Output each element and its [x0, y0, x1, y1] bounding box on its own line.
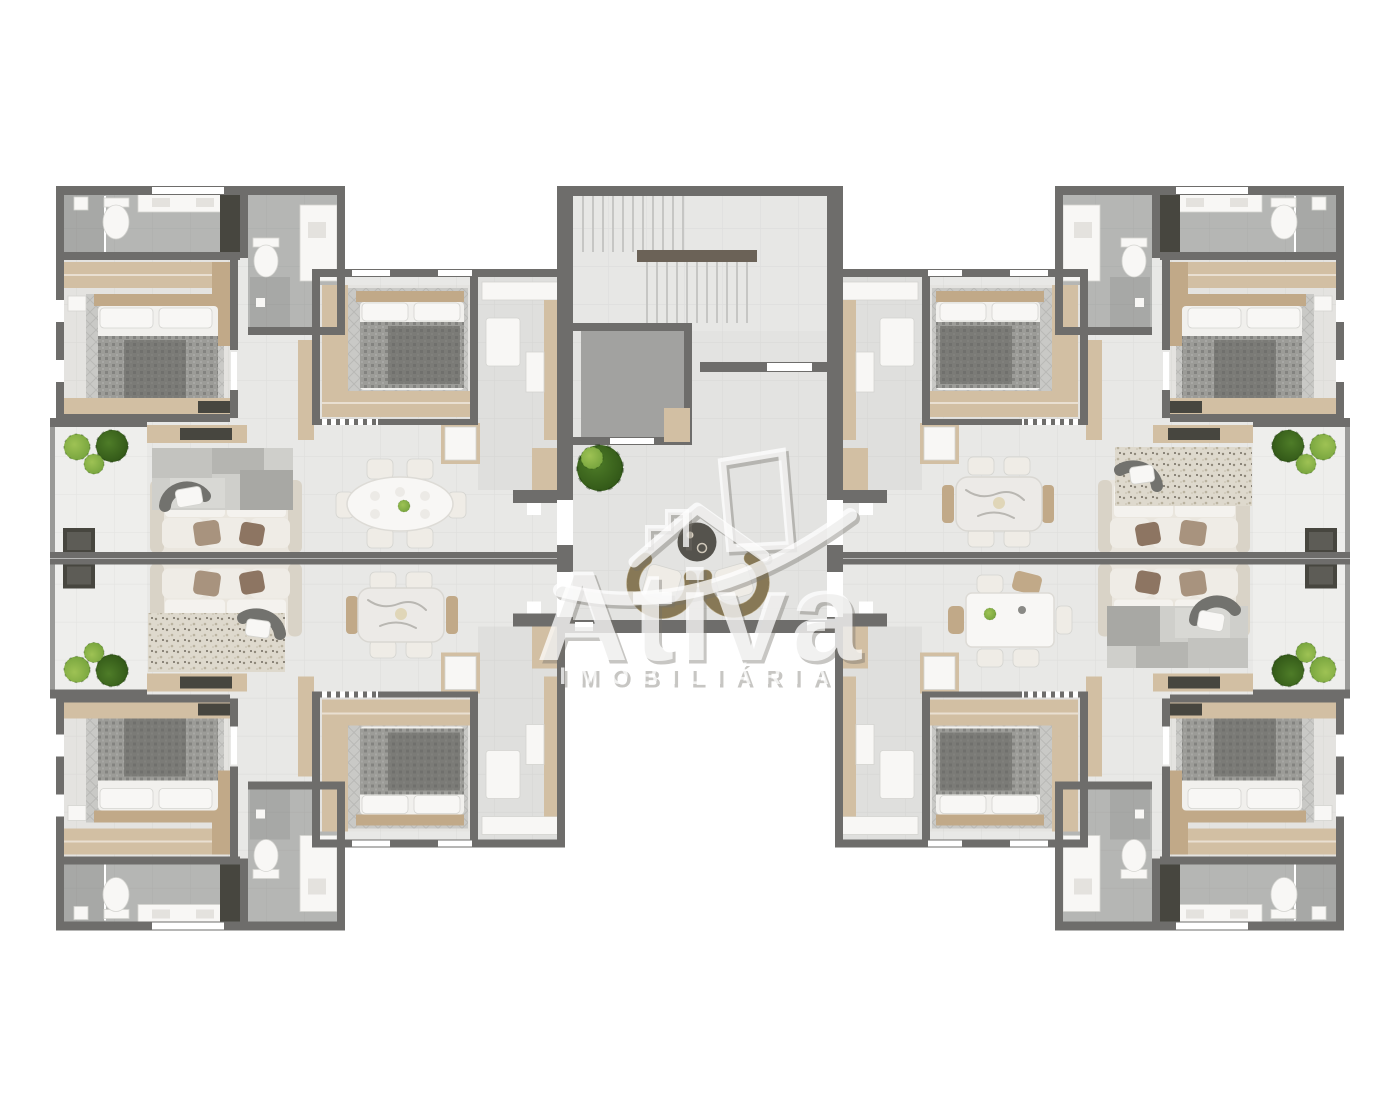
stair-rail: [637, 250, 757, 262]
dining-table-icon: [966, 593, 1054, 647]
chair: [968, 457, 994, 475]
chair: [407, 459, 433, 479]
lobby-console: [664, 408, 690, 442]
chair: [367, 459, 393, 479]
rug-upper-right: [1115, 447, 1252, 506]
watermark-tagline: IMOBILIÁRIA: [559, 662, 840, 690]
bench: [346, 596, 358, 634]
elevator-door: [610, 438, 654, 444]
chair: [977, 575, 1003, 593]
unit-lower-left: [50, 559, 565, 934]
unit-entrance-door: [557, 500, 573, 545]
chair: [1056, 606, 1072, 634]
unit-lower-right: [835, 559, 1350, 934]
floor-plan-svg: Ativa IMOBILIÁRIA Ativa IMOBILIÁRIA: [0, 0, 1400, 1120]
rug-lower-left: [148, 613, 285, 672]
rug-upper-left: [152, 448, 293, 510]
rug-lower-right: [1107, 601, 1248, 668]
bench: [942, 485, 954, 523]
unit-upper-right: [835, 183, 1350, 558]
floor-plan-canvas: Ativa IMOBILIÁRIA Ativa IMOBILIÁRIA: [0, 0, 1400, 1120]
door-leaf: [767, 363, 812, 371]
bench: [1042, 485, 1054, 523]
bench: [446, 596, 458, 634]
chair: [977, 649, 1003, 667]
ottoman: [1129, 464, 1155, 484]
ottoman: [245, 618, 271, 638]
chair: [948, 606, 964, 634]
unit-upper-left: [50, 183, 565, 558]
chair: [1013, 649, 1039, 667]
chair: [1004, 457, 1030, 475]
